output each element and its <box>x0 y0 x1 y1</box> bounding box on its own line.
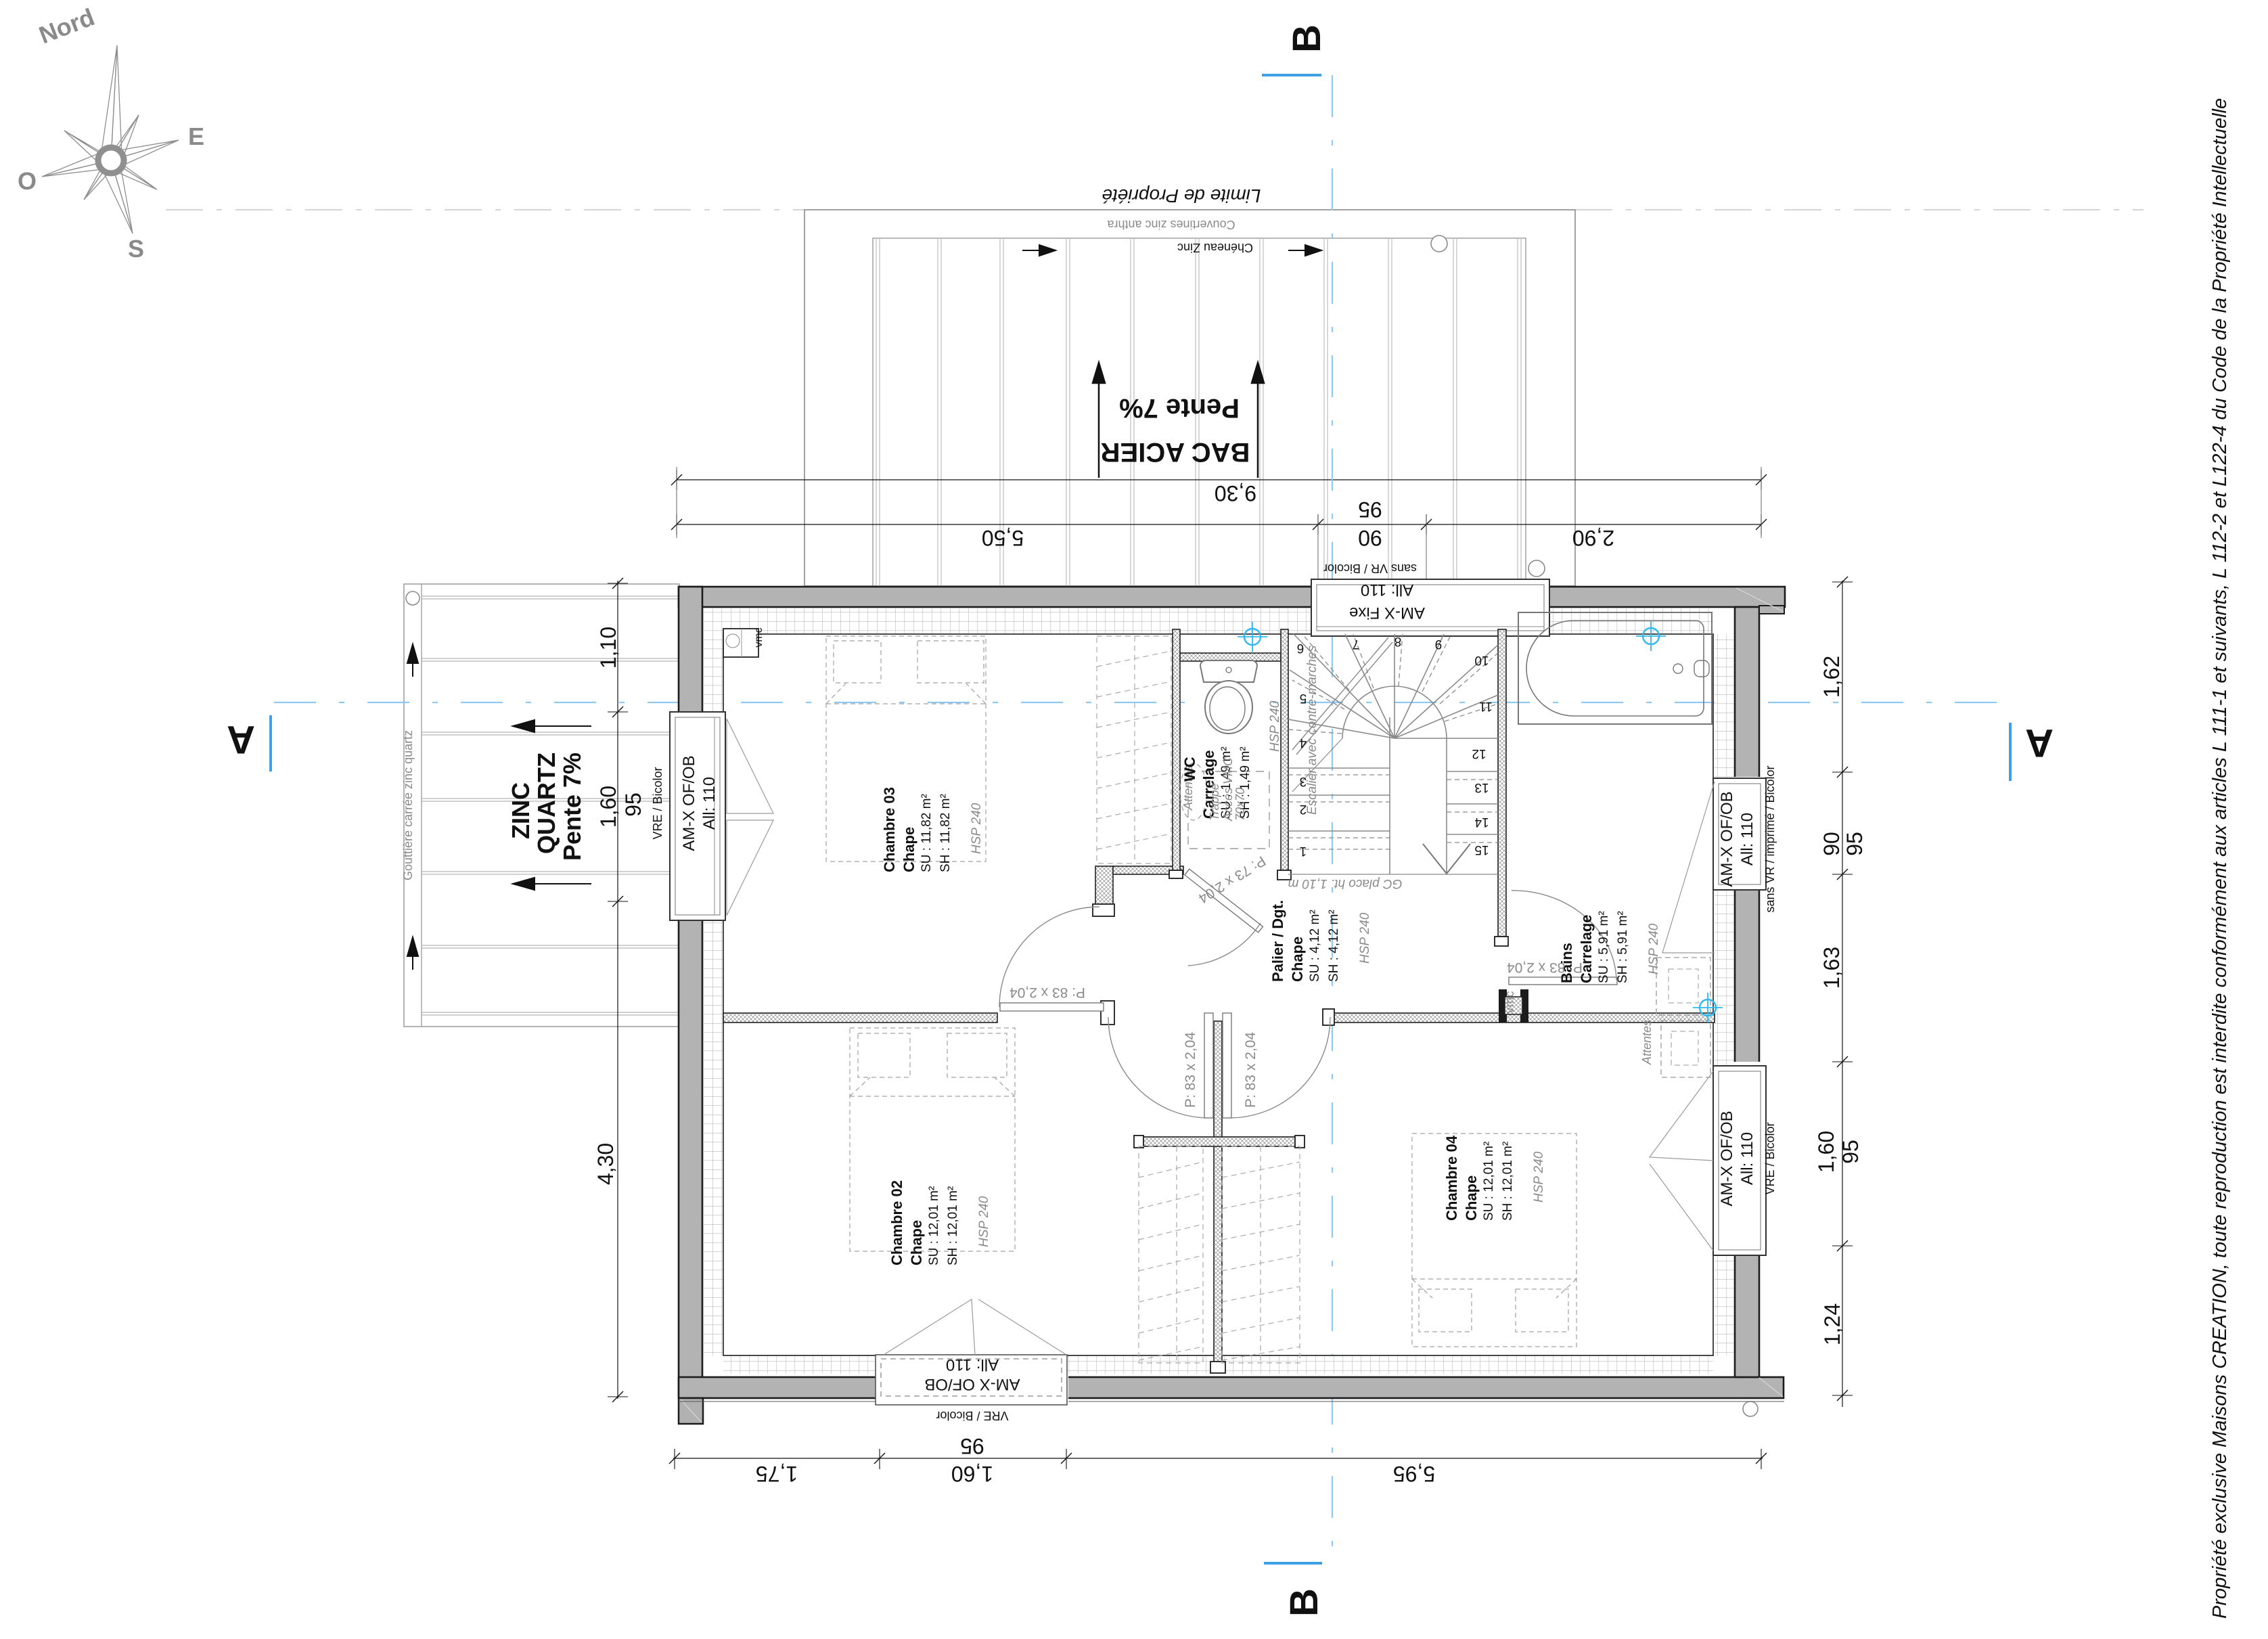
svg-text:90: 90 <box>1358 526 1382 550</box>
svg-text:A: A <box>227 717 255 761</box>
svg-text:14: 14 <box>1474 815 1489 829</box>
svg-text:Trappe: Trappe <box>1208 783 1221 821</box>
svg-text:SU : 4,12 m²: SU : 4,12 m² <box>1308 910 1322 982</box>
svg-text:1,75: 1,75 <box>756 1462 798 1486</box>
svg-text:P: 83 x 2,04: P: 83 x 2,04 <box>1183 1032 1198 1108</box>
svg-text:1,60: 1,60 <box>1814 1131 1838 1173</box>
svg-text:Propriété exclusive Maisons CR: Propriété exclusive Maisons CREATION, to… <box>2209 98 2231 1619</box>
svg-text:B: B <box>1282 1588 1326 1617</box>
svg-text:13: 13 <box>1474 780 1489 794</box>
svg-text:Palier / Dgt.: Palier / Dgt. <box>1269 900 1286 982</box>
svg-text:All: 110: All: 110 <box>1738 1132 1756 1185</box>
svg-text:All: 110: All: 110 <box>1738 813 1756 866</box>
svg-text:1,10: 1,10 <box>596 627 620 669</box>
svg-text:12: 12 <box>1472 746 1486 761</box>
svg-text:Pente 7%: Pente 7% <box>1119 393 1240 423</box>
svg-text:HSP 240: HSP 240 <box>1647 923 1661 974</box>
svg-text:P: 83 x 2,04: P: 83 x 2,04 <box>1010 985 1085 1000</box>
svg-text:5,50: 5,50 <box>982 526 1024 550</box>
svg-text:Pente 7%: Pente 7% <box>558 753 586 861</box>
svg-text:90: 90 <box>1819 832 1844 856</box>
svg-text:SH : 4,12 m²: SH : 4,12 m² <box>1327 910 1341 982</box>
svg-text:Couvertines zinc anthra: Couvertines zinc anthra <box>1106 218 1235 231</box>
svg-text:AM-X OF/OB: AM-X OF/OB <box>1718 1110 1736 1206</box>
svg-text:95: 95 <box>1358 497 1382 522</box>
svg-text:SU : 12,01 m²: SU : 12,01 m² <box>927 1186 941 1265</box>
svg-text:15: 15 <box>1474 843 1489 857</box>
svg-text:4,30: 4,30 <box>593 1143 618 1185</box>
svg-text:SH : 12,01 m²: SH : 12,01 m² <box>1501 1142 1515 1221</box>
svg-text:AM-X OF/OB: AM-X OF/OB <box>680 755 698 851</box>
svg-text:8: 8 <box>1394 634 1402 648</box>
svg-text:1,24: 1,24 <box>1820 1303 1844 1345</box>
svg-text:All: 110: All: 110 <box>1361 581 1413 599</box>
svg-text:Escalier avec contre-marches: Escalier avec contre-marches <box>1305 645 1319 815</box>
svg-text:O: O <box>18 167 37 195</box>
svg-text:P: 83 x 2,04: P: 83 x 2,04 <box>1243 1032 1258 1108</box>
svg-text:1: 1 <box>1300 844 1307 858</box>
svg-text:95: 95 <box>621 792 645 817</box>
svg-text:GC placo ht. 1,10 m: GC placo ht. 1,10 m <box>1288 876 1403 891</box>
svg-text:SU : 12,01 m²: SU : 12,01 m² <box>1482 1142 1496 1221</box>
svg-text:SU : 11,82 m²: SU : 11,82 m² <box>920 794 934 872</box>
svg-text:SU : 5,91 m²: SU : 5,91 m² <box>1597 911 1611 983</box>
svg-text:vmc: vmc <box>753 627 765 647</box>
svg-text:Chape: Chape <box>901 827 917 872</box>
svg-text:ZINC: ZINC <box>507 782 535 839</box>
svg-text:SH : 12,01 m²: SH : 12,01 m² <box>946 1186 960 1265</box>
svg-text:BAC ACIER: BAC ACIER <box>1101 437 1250 467</box>
svg-text:B: B <box>1285 24 1329 53</box>
svg-text:HSP 240: HSP 240 <box>1358 912 1372 964</box>
svg-text:Chambre 02: Chambre 02 <box>888 1180 905 1265</box>
svg-text:VRE / Bicolor: VRE / Bicolor <box>651 767 664 839</box>
svg-text:Chambre 04: Chambre 04 <box>1443 1135 1460 1221</box>
svg-text:Attentes: Attentes <box>1640 1020 1654 1065</box>
svg-text:Chéneau Zinc: Chéneau Zinc <box>1177 241 1253 254</box>
svg-text:Acces VMC: Acces VMC <box>1221 757 1235 822</box>
svg-text:2,90: 2,90 <box>1572 526 1614 550</box>
svg-text:Chape: Chape <box>908 1220 925 1265</box>
svg-text:sans VR / imprimé / Bicolor: sans VR / imprimé / Bicolor <box>1763 765 1777 912</box>
svg-text:HSP 240: HSP 240 <box>1532 1151 1546 1203</box>
svg-text:HSP 240: HSP 240 <box>1268 700 1282 752</box>
svg-text:E: E <box>188 122 204 150</box>
svg-text:All: 110: All: 110 <box>946 1355 999 1374</box>
svg-text:9,30: 9,30 <box>1215 481 1256 506</box>
svg-text:AM-X OF/OB: AM-X OF/OB <box>924 1375 1020 1393</box>
svg-text:A: A <box>2025 721 2054 765</box>
svg-text:HSP 240: HSP 240 <box>977 1196 991 1247</box>
svg-text:Limite de Propriété: Limite de Propriété <box>1102 185 1261 206</box>
svg-text:1,62: 1,62 <box>1819 656 1844 698</box>
svg-text:Chape: Chape <box>1289 937 1306 982</box>
svg-text:AM-X OF/OB: AM-X OF/OB <box>1718 791 1736 886</box>
svg-text:Chambre 03: Chambre 03 <box>881 787 898 872</box>
svg-text:95: 95 <box>960 1434 984 1458</box>
svg-text:6: 6 <box>1297 641 1305 655</box>
svg-text:SH : 11,82 m²: SH : 11,82 m² <box>938 794 953 872</box>
svg-text:SH : 5,91 m²: SH : 5,91 m² <box>1616 911 1630 983</box>
svg-text:sans VR / Bicolor: sans VR / Bicolor <box>1323 562 1417 575</box>
svg-text:Chape: Chape <box>1463 1175 1480 1221</box>
svg-text:HSP 240: HSP 240 <box>970 803 984 854</box>
svg-text:WC: WC <box>1181 757 1198 782</box>
svg-text:1,60: 1,60 <box>951 1462 993 1486</box>
svg-text:11: 11 <box>1479 699 1493 713</box>
svg-text:7: 7 <box>1353 637 1360 651</box>
svg-text:P: 83 x 2,04: P: 83 x 2,04 <box>1507 960 1583 975</box>
svg-text:VRE / Bicolor: VRE / Bicolor <box>1763 1122 1777 1194</box>
svg-text:95: 95 <box>1842 832 1867 856</box>
svg-text:vmc: vmc <box>1503 991 1516 1014</box>
svg-text:70x70: 70x70 <box>1233 788 1247 821</box>
svg-text:5,95: 5,95 <box>1393 1462 1435 1486</box>
svg-text:1,63: 1,63 <box>1819 947 1844 989</box>
svg-text:10: 10 <box>1474 653 1489 667</box>
svg-text:VRE / Bicolor: VRE / Bicolor <box>936 1409 1008 1422</box>
svg-text:Gouttière carrée zinc quartz: Gouttière carrée zinc quartz <box>401 730 415 880</box>
svg-text:S: S <box>128 235 144 263</box>
svg-text:AM-X Fixe: AM-X Fixe <box>1349 604 1425 622</box>
svg-text:95: 95 <box>1838 1140 1863 1164</box>
svg-text:1,60: 1,60 <box>596 786 620 828</box>
svg-text:9: 9 <box>1435 637 1443 651</box>
svg-text:QUARTZ: QUARTZ <box>532 753 560 854</box>
svg-text:All: 110: All: 110 <box>700 777 719 830</box>
